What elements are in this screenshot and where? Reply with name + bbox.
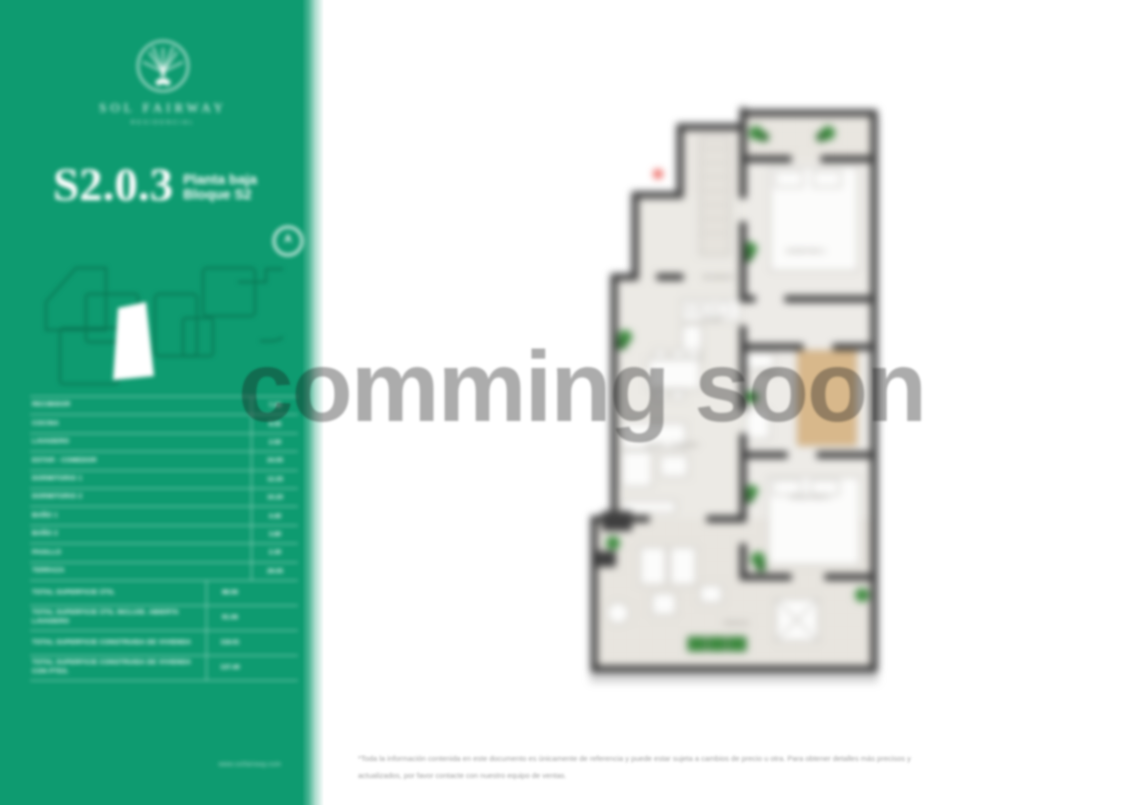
red-location-marker (654, 170, 663, 179)
room-value: 91.06 (206, 606, 253, 630)
room-label-cocina: COCINA (700, 317, 722, 323)
table-row: DORMITORIO 210.20 (30, 488, 298, 506)
room-value: 2.30 (251, 544, 298, 561)
room-label: RECIBIDOR (30, 399, 251, 412)
room-label: TOTAL SUPERFICIE ÚTIL (30, 587, 206, 600)
room-label: DORMITORIO 1 (30, 473, 251, 486)
table-row: BAÑO 23.80 (30, 525, 298, 543)
room-label: DORMITORIO 2 (30, 491, 251, 504)
unit-code: S2.0.3 (53, 160, 173, 210)
room-value: 137.40 (206, 656, 253, 680)
room-label-recibidor: RECIBIDOR (703, 275, 734, 281)
room-value: 24.05 (251, 452, 298, 469)
brand-logo: SOL FAIRWAY RESIDENCIAL (0, 38, 326, 126)
table-row: TOTAL SUPERFICIE CONSTRUIDA DE VIVIENDA1… (30, 630, 298, 655)
surface-table-totals: TOTAL SUPERFICIE ÚTIL88.56TOTAL SUPERFIC… (30, 580, 298, 680)
north-compass-icon (271, 224, 305, 258)
table-row: ESTAR - COMEDOR24.05 (30, 451, 298, 469)
room-label-dormitorio2: DORMITORIO 2 (790, 495, 830, 501)
table-row: TOTAL SUPERFICIE CONSTRUIDA DE VIVIENDA … (30, 655, 298, 680)
room-label: TERRAZA (30, 565, 251, 578)
footer-disclaimer: *Toda la información contenida en este d… (358, 750, 943, 784)
room-label: PASILLO (30, 547, 251, 560)
room-value: 88.56 (206, 581, 253, 605)
unit-floor-block: Planta baja Bloque S2 (183, 172, 257, 202)
brand-subtitle: RESIDENCIAL (0, 120, 326, 126)
table-row: TOTAL SUPERFICIE ÚTIL88.56 (30, 580, 298, 605)
room-value: 118.01 (206, 631, 253, 655)
room-label: BAÑO 1 (30, 510, 251, 523)
brochure-page: SOL FAIRWAY RESIDENCIAL S2.0.3 Planta ba… (0, 0, 1140, 805)
room-value: 29.05 (251, 563, 298, 580)
room-value: 3.80 (251, 526, 298, 543)
disclaimer-line-1: *Toda la información contenida en este d… (358, 750, 943, 767)
unit-block: Bloque S2 (183, 187, 257, 202)
coming-soon-watermark: comming soon (238, 330, 925, 445)
table-row: PASILLO2.30 (30, 543, 298, 561)
room-label: ESTAR - COMEDOR (30, 455, 251, 468)
room-label: TOTAL SUPERFICIE CONSTRUIDA DE VIVIENDA … (30, 657, 206, 678)
unit-header: S2.0.3 Planta baja Bloque S2 (53, 160, 257, 210)
room-value: 12.25 (251, 471, 298, 488)
table-row: DORMITORIO 112.25 (30, 470, 298, 488)
unit-floor: Planta baja (183, 172, 257, 187)
website-link: www.solfairway.com (180, 762, 320, 768)
room-label-terraza: TERRAZA (723, 621, 749, 627)
room-label: TOTAL SUPERFICIE CONSTRUIDA DE VIVIENDA (30, 637, 206, 650)
table-row: BAÑO 14.40 (30, 506, 298, 524)
room-label: TOTAL SUPERFICIE ÚTIL INCLUID. ABIERTA L… (30, 607, 206, 628)
table-row: TERRAZA29.05 (30, 562, 298, 580)
room-value: 4.40 (251, 507, 298, 524)
room-label-dormitorio1: DORMITORIO 1 (786, 249, 826, 255)
sun-palm-emblem-icon (135, 38, 191, 94)
table-row: TOTAL SUPERFICIE ÚTIL INCLUID. ABIERTA L… (30, 605, 298, 630)
room-label: COCINA (30, 418, 251, 431)
room-value: 10.20 (251, 489, 298, 506)
room-label: LAVADERO (30, 436, 251, 449)
brand-name: SOL FAIRWAY (0, 100, 326, 116)
room-label: BAÑO 2 (30, 528, 251, 541)
disclaimer-line-2: actualizados, por favor contacte con nue… (358, 767, 943, 784)
highlighted-unit-building (113, 302, 154, 380)
